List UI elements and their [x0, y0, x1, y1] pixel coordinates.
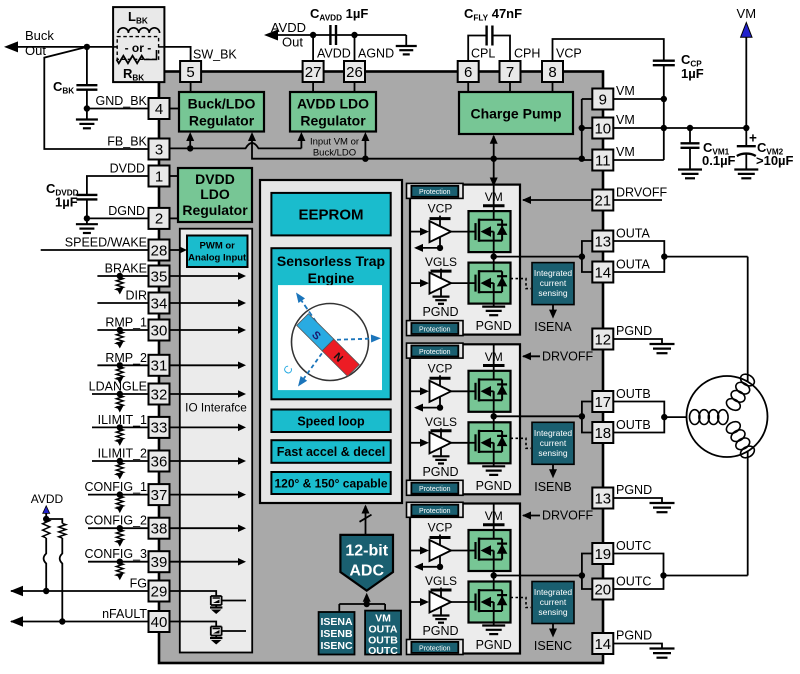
- svg-text:Protection: Protection: [419, 349, 451, 356]
- svg-text:VM: VM: [616, 84, 635, 98]
- svg-text:PGND: PGND: [616, 629, 652, 643]
- svg-text:OUTA: OUTA: [616, 227, 650, 241]
- svg-text:Protection: Protection: [419, 508, 451, 515]
- svg-text:sensing: sensing: [538, 448, 568, 458]
- svg-text:Regulator: Regulator: [300, 113, 366, 129]
- svg-text:18: 18: [594, 425, 611, 442]
- svg-text:IO Interafce: IO Interafce: [185, 401, 247, 415]
- svg-text:current: current: [540, 597, 567, 607]
- svg-text:37: 37: [151, 487, 168, 504]
- svg-text:DRVOFF: DRVOFF: [542, 349, 594, 363]
- svg-text:RMP_2: RMP_2: [105, 351, 147, 365]
- svg-text:1: 1: [155, 168, 163, 185]
- svg-text:OUTC: OUTC: [616, 539, 651, 553]
- svg-text:Regulator: Regulator: [182, 202, 248, 218]
- svg-text:>10µF: >10µF: [756, 153, 794, 168]
- svg-text:3: 3: [155, 141, 163, 158]
- svg-text:Protection: Protection: [419, 486, 451, 493]
- svg-text:SW_BK: SW_BK: [193, 48, 237, 62]
- svg-text:20: 20: [594, 581, 611, 598]
- svg-text:DVDD: DVDD: [110, 162, 145, 176]
- svg-text:Fast accel & decel: Fast accel & decel: [277, 445, 385, 459]
- svg-text:27: 27: [305, 64, 322, 81]
- svg-text:31: 31: [151, 358, 168, 375]
- svg-text:OUTA: OUTA: [616, 258, 650, 272]
- svg-text:EEPROM: EEPROM: [298, 207, 363, 224]
- svg-text:Buck/LDO: Buck/LDO: [188, 96, 256, 112]
- svg-text:AVDD: AVDD: [31, 492, 64, 506]
- svg-text:VGLS: VGLS: [425, 574, 457, 588]
- svg-text:Regulator: Regulator: [189, 113, 255, 129]
- svg-text:PGND: PGND: [616, 324, 652, 338]
- svg-text:current: current: [540, 438, 567, 448]
- svg-text:CONFIG_3: CONFIG_3: [84, 547, 147, 561]
- svg-text:30: 30: [151, 322, 168, 339]
- svg-text:Buck: Buck: [25, 28, 54, 43]
- svg-text:VGLS: VGLS: [425, 255, 457, 269]
- svg-text:OUTB: OUTB: [616, 387, 651, 401]
- svg-text:ISENB: ISENB: [320, 628, 353, 640]
- svg-text:SPEED/WAKE: SPEED/WAKE: [65, 236, 147, 250]
- svg-text:DVDD: DVDD: [195, 171, 235, 187]
- svg-text:34: 34: [151, 295, 168, 312]
- svg-text:FG: FG: [130, 577, 147, 591]
- svg-text:CONFIG_2: CONFIG_2: [84, 514, 147, 528]
- svg-text:6: 6: [464, 64, 472, 81]
- svg-text:32: 32: [151, 386, 168, 403]
- svg-text:PGND: PGND: [616, 483, 652, 497]
- svg-text:DIR: DIR: [125, 289, 147, 303]
- svg-text:2: 2: [155, 211, 163, 228]
- svg-text:Protection: Protection: [419, 645, 451, 652]
- svg-text:nFAULT: nFAULT: [102, 607, 147, 621]
- svg-text:CFLY 47nF: CFLY 47nF: [464, 6, 522, 23]
- svg-text:OUTC: OUTC: [616, 575, 651, 589]
- svg-text:11: 11: [595, 152, 611, 169]
- svg-text:Engine: Engine: [308, 270, 355, 286]
- svg-text:AVDD LDO: AVDD LDO: [297, 96, 369, 112]
- svg-text:7: 7: [506, 64, 514, 81]
- svg-text:10: 10: [594, 120, 611, 137]
- svg-text:CPL: CPL: [471, 47, 495, 61]
- svg-text:CONFIG_1: CONFIG_1: [84, 480, 147, 494]
- svg-text:ISENA: ISENA: [320, 616, 353, 628]
- svg-text:LDANGLE: LDANGLE: [89, 380, 147, 394]
- svg-text:33: 33: [151, 420, 168, 437]
- svg-text:5: 5: [186, 64, 194, 81]
- svg-text:current: current: [540, 278, 567, 288]
- svg-text:Out: Out: [25, 43, 46, 58]
- svg-text:PGND: PGND: [422, 624, 458, 638]
- svg-text:VM: VM: [737, 6, 757, 21]
- svg-text:ISENC: ISENC: [320, 640, 353, 652]
- svg-text:8: 8: [548, 64, 556, 81]
- svg-text:VCP: VCP: [428, 361, 453, 375]
- svg-text:BRAKE: BRAKE: [105, 262, 147, 276]
- svg-text:ILIMIT_2: ILIMIT_2: [98, 447, 147, 461]
- svg-text:13: 13: [594, 233, 611, 250]
- svg-text:12-bit: 12-bit: [345, 543, 388, 560]
- svg-text:VCP: VCP: [428, 521, 453, 535]
- svg-text:14: 14: [594, 264, 611, 281]
- svg-text:OUTC: OUTC: [368, 645, 398, 657]
- svg-text:Charge Pump: Charge Pump: [470, 106, 561, 122]
- svg-text:1µF: 1µF: [681, 66, 704, 81]
- svg-text:Integrated: Integrated: [534, 428, 573, 438]
- svg-text:26: 26: [346, 64, 363, 81]
- svg-text:35: 35: [151, 268, 168, 285]
- svg-text:FB_BK: FB_BK: [107, 135, 147, 149]
- svg-text:PGND: PGND: [422, 305, 458, 319]
- svg-text:VCP: VCP: [556, 47, 582, 61]
- svg-text:PGND: PGND: [476, 479, 512, 493]
- svg-text:19: 19: [594, 546, 611, 563]
- svg-text:RMP_1: RMP_1: [105, 316, 147, 330]
- svg-text:29: 29: [151, 583, 168, 600]
- svg-text:sensing: sensing: [538, 288, 568, 298]
- svg-text:ILIMIT_1: ILIMIT_1: [98, 413, 147, 427]
- svg-text:21: 21: [594, 192, 611, 209]
- svg-text:39: 39: [151, 554, 168, 571]
- svg-text:VCP: VCP: [428, 202, 453, 216]
- svg-text:14: 14: [594, 636, 611, 653]
- svg-text:PGND: PGND: [476, 319, 512, 333]
- svg-text:Integrated: Integrated: [534, 268, 573, 278]
- svg-text:Speed loop: Speed loop: [297, 414, 365, 428]
- svg-text:ISENC: ISENC: [534, 639, 572, 653]
- svg-text:Analog Input: Analog Input: [188, 253, 247, 264]
- svg-text:36: 36: [151, 453, 168, 470]
- svg-text:CPH: CPH: [514, 47, 540, 61]
- svg-text:4: 4: [155, 101, 163, 118]
- svg-text:ISENA: ISENA: [534, 320, 572, 334]
- svg-text:Protection: Protection: [419, 326, 451, 333]
- svg-text:- or -: - or -: [125, 41, 152, 55]
- svg-text:GND_BK: GND_BK: [95, 94, 147, 108]
- svg-text:40: 40: [151, 614, 168, 631]
- svg-text:Out: Out: [282, 35, 303, 50]
- svg-text:+: +: [749, 131, 757, 146]
- svg-text:Input VM or: Input VM or: [310, 137, 359, 148]
- svg-text:VM: VM: [616, 145, 635, 159]
- svg-text:13: 13: [594, 490, 611, 507]
- svg-text:28: 28: [151, 242, 168, 259]
- svg-text:ISENB: ISENB: [534, 480, 572, 494]
- svg-text:VM: VM: [616, 113, 635, 127]
- svg-text:DGND: DGND: [108, 204, 145, 218]
- svg-text:1µF: 1µF: [55, 195, 78, 210]
- svg-text:17: 17: [594, 394, 611, 411]
- svg-text:9: 9: [599, 91, 607, 108]
- svg-text:DRVOFF: DRVOFF: [542, 509, 594, 523]
- svg-text:Protection: Protection: [419, 189, 451, 196]
- svg-text:Sensorless Trap: Sensorless Trap: [277, 253, 385, 269]
- svg-text:AGND: AGND: [358, 47, 394, 61]
- svg-text:OUTB: OUTB: [616, 418, 651, 432]
- svg-text:Integrated: Integrated: [534, 587, 573, 597]
- svg-text:LDO: LDO: [200, 186, 230, 202]
- svg-text:PGND: PGND: [476, 638, 512, 652]
- svg-text:0.1µF: 0.1µF: [702, 153, 736, 168]
- svg-text:ADC: ADC: [349, 563, 384, 580]
- svg-text:PWM or: PWM or: [200, 241, 236, 252]
- svg-text:Buck/LDO: Buck/LDO: [313, 148, 356, 159]
- svg-text:38: 38: [151, 521, 168, 538]
- svg-text:sensing: sensing: [538, 607, 568, 617]
- svg-text:PGND: PGND: [422, 465, 458, 479]
- svg-text:AVDD: AVDD: [271, 20, 306, 35]
- svg-text:VGLS: VGLS: [425, 415, 457, 429]
- svg-text:AVDD: AVDD: [317, 47, 351, 61]
- svg-text:DRVOFF: DRVOFF: [616, 186, 668, 200]
- svg-text:120° & 150° capable: 120° & 150° capable: [275, 477, 388, 491]
- svg-text:12: 12: [594, 331, 611, 348]
